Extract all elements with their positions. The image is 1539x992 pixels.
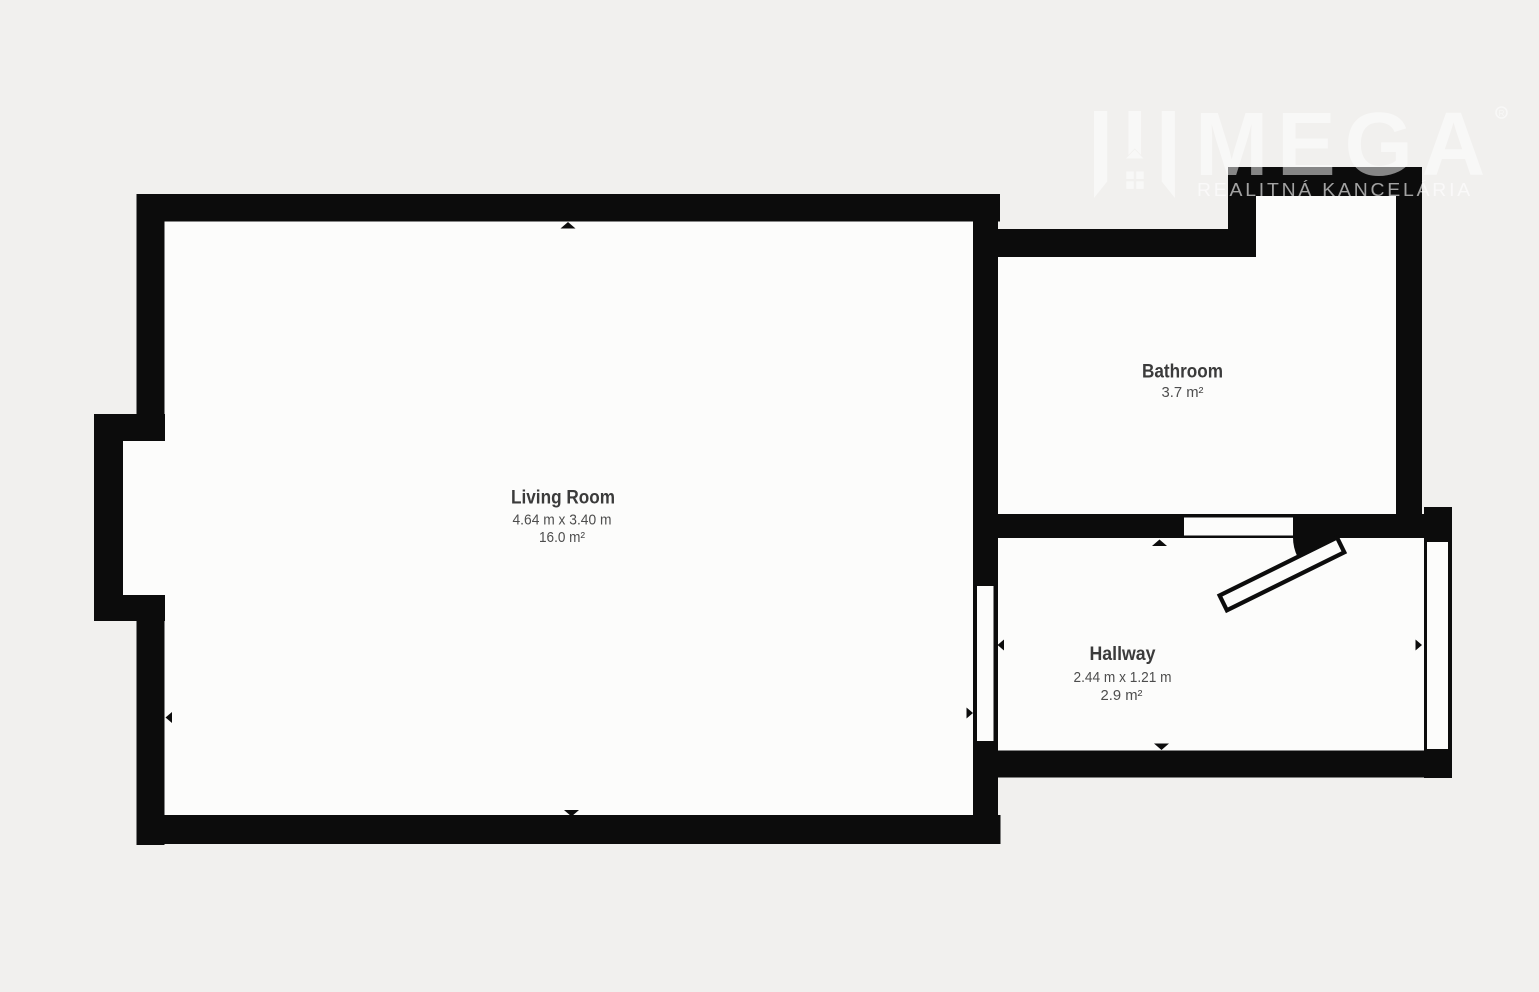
svg-text:Living Room: Living Room [511,488,615,509]
svg-text:REALITNÁ KANCELÁRIA: REALITNÁ KANCELÁRIA [1197,180,1473,200]
svg-text:3.7 m²: 3.7 m² [1162,385,1204,401]
svg-text:4.64 m x 3.40 m: 4.64 m x 3.40 m [513,512,612,528]
svg-text:R: R [1499,109,1505,118]
svg-text:Hallway: Hallway [1090,644,1156,665]
svg-text:2.9 m²: 2.9 m² [1101,688,1143,704]
svg-text:2.44 m x 1.21 m: 2.44 m x 1.21 m [1074,670,1172,686]
svg-text:16.0 m²: 16.0 m² [539,530,585,546]
svg-text:Bathroom: Bathroom [1142,362,1223,383]
